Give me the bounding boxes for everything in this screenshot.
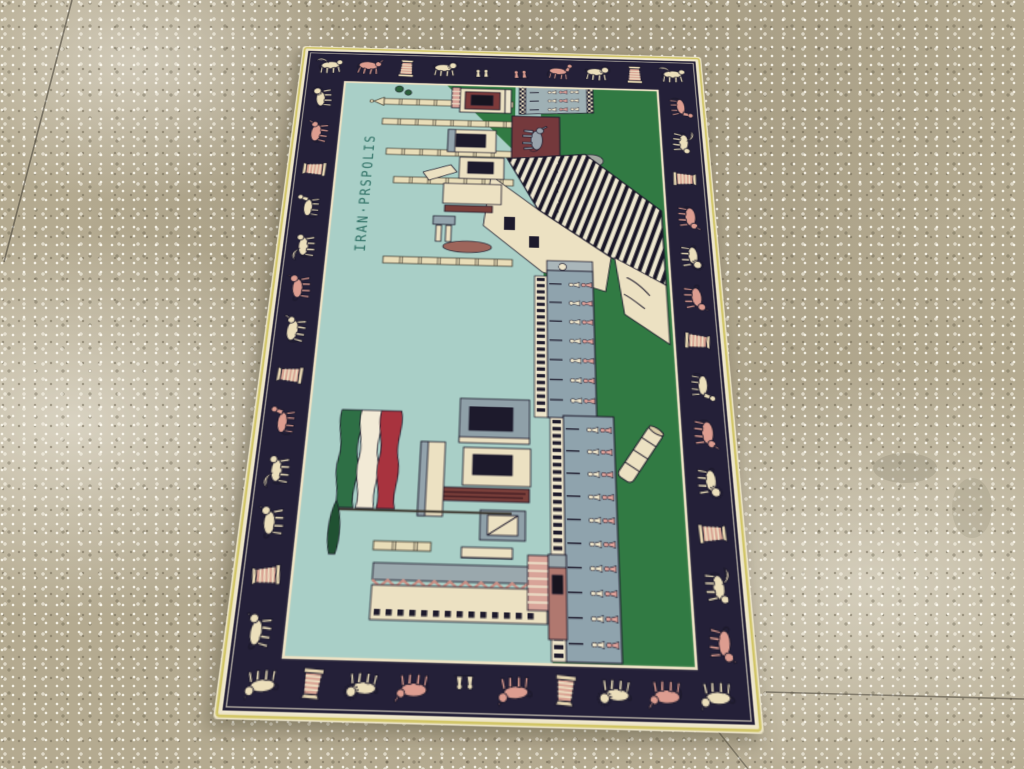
meander-square bbox=[552, 420, 560, 424]
meander-square bbox=[554, 653, 563, 658]
meander-square bbox=[537, 388, 545, 392]
meander-square bbox=[537, 354, 545, 358]
rug-field-scene: IRAN·PRSPOLIS bbox=[283, 79, 696, 668]
meander-square bbox=[554, 645, 563, 650]
meander-square bbox=[537, 303, 545, 306]
meander-square bbox=[374, 609, 380, 615]
meander-square bbox=[537, 284, 545, 287]
meander-square bbox=[537, 328, 545, 331]
meander-square bbox=[537, 315, 545, 318]
meander-square bbox=[537, 334, 545, 337]
meander-square bbox=[553, 538, 562, 542]
meander-square bbox=[397, 609, 403, 615]
column-capital-tip bbox=[370, 100, 374, 103]
rug-artwork: IRAN·PRSPOLIS bbox=[213, 46, 764, 734]
meander-square bbox=[537, 278, 545, 281]
relief-panel bbox=[519, 86, 593, 114]
meander-square bbox=[537, 408, 545, 412]
floor-stain bbox=[873, 453, 937, 483]
meander-square bbox=[537, 394, 545, 398]
meander-square bbox=[553, 448, 562, 452]
meander-square bbox=[537, 296, 545, 299]
spear-line bbox=[530, 109, 539, 110]
spear-line bbox=[530, 101, 539, 102]
meander-square bbox=[537, 347, 545, 351]
meander-square bbox=[553, 477, 562, 481]
meander-square bbox=[480, 612, 486, 618]
meander-square bbox=[553, 470, 562, 474]
meander-square bbox=[553, 463, 562, 467]
meander-square bbox=[553, 508, 562, 512]
meander-square bbox=[537, 367, 545, 371]
persepolis-pictorial-rug: IRAN·PRSPOLIS bbox=[213, 46, 764, 734]
meander-square bbox=[553, 455, 562, 459]
meander-square bbox=[528, 613, 534, 619]
meander-square bbox=[553, 441, 562, 445]
meander-square bbox=[537, 381, 545, 385]
photograph: IRAN·PRSPOLIS bbox=[0, 0, 1024, 769]
meander-square bbox=[552, 427, 560, 431]
meander-square bbox=[516, 613, 522, 619]
meander-square bbox=[433, 610, 439, 616]
meander-square bbox=[421, 610, 427, 616]
meander-square bbox=[537, 361, 545, 365]
meander-square bbox=[468, 611, 474, 617]
meander-square bbox=[553, 515, 562, 519]
meander-square bbox=[537, 401, 545, 405]
meander-square bbox=[553, 500, 562, 504]
meander-square bbox=[553, 492, 562, 496]
spear-line bbox=[530, 92, 539, 93]
meander-square bbox=[409, 610, 415, 616]
floor-seam bbox=[4, 0, 72, 262]
meander-square bbox=[553, 485, 562, 489]
meander-square bbox=[456, 611, 462, 617]
meander-square bbox=[492, 612, 498, 618]
floor-stain bbox=[952, 478, 992, 538]
border-motif-column bbox=[627, 66, 642, 83]
meander-square bbox=[385, 609, 391, 615]
meander-square bbox=[445, 611, 451, 617]
gate-building bbox=[451, 87, 511, 113]
meander-square bbox=[553, 531, 562, 535]
meander-square bbox=[553, 434, 562, 438]
meander-square bbox=[537, 374, 545, 378]
meander-square bbox=[537, 322, 545, 325]
meander-square bbox=[504, 612, 510, 618]
floor-seam bbox=[766, 692, 1024, 699]
meander-square bbox=[553, 546, 562, 550]
meander-square bbox=[553, 523, 562, 527]
column-shaft bbox=[373, 541, 431, 551]
meander-square bbox=[537, 341, 545, 344]
meander-square bbox=[537, 290, 545, 293]
meander-square bbox=[537, 309, 545, 312]
